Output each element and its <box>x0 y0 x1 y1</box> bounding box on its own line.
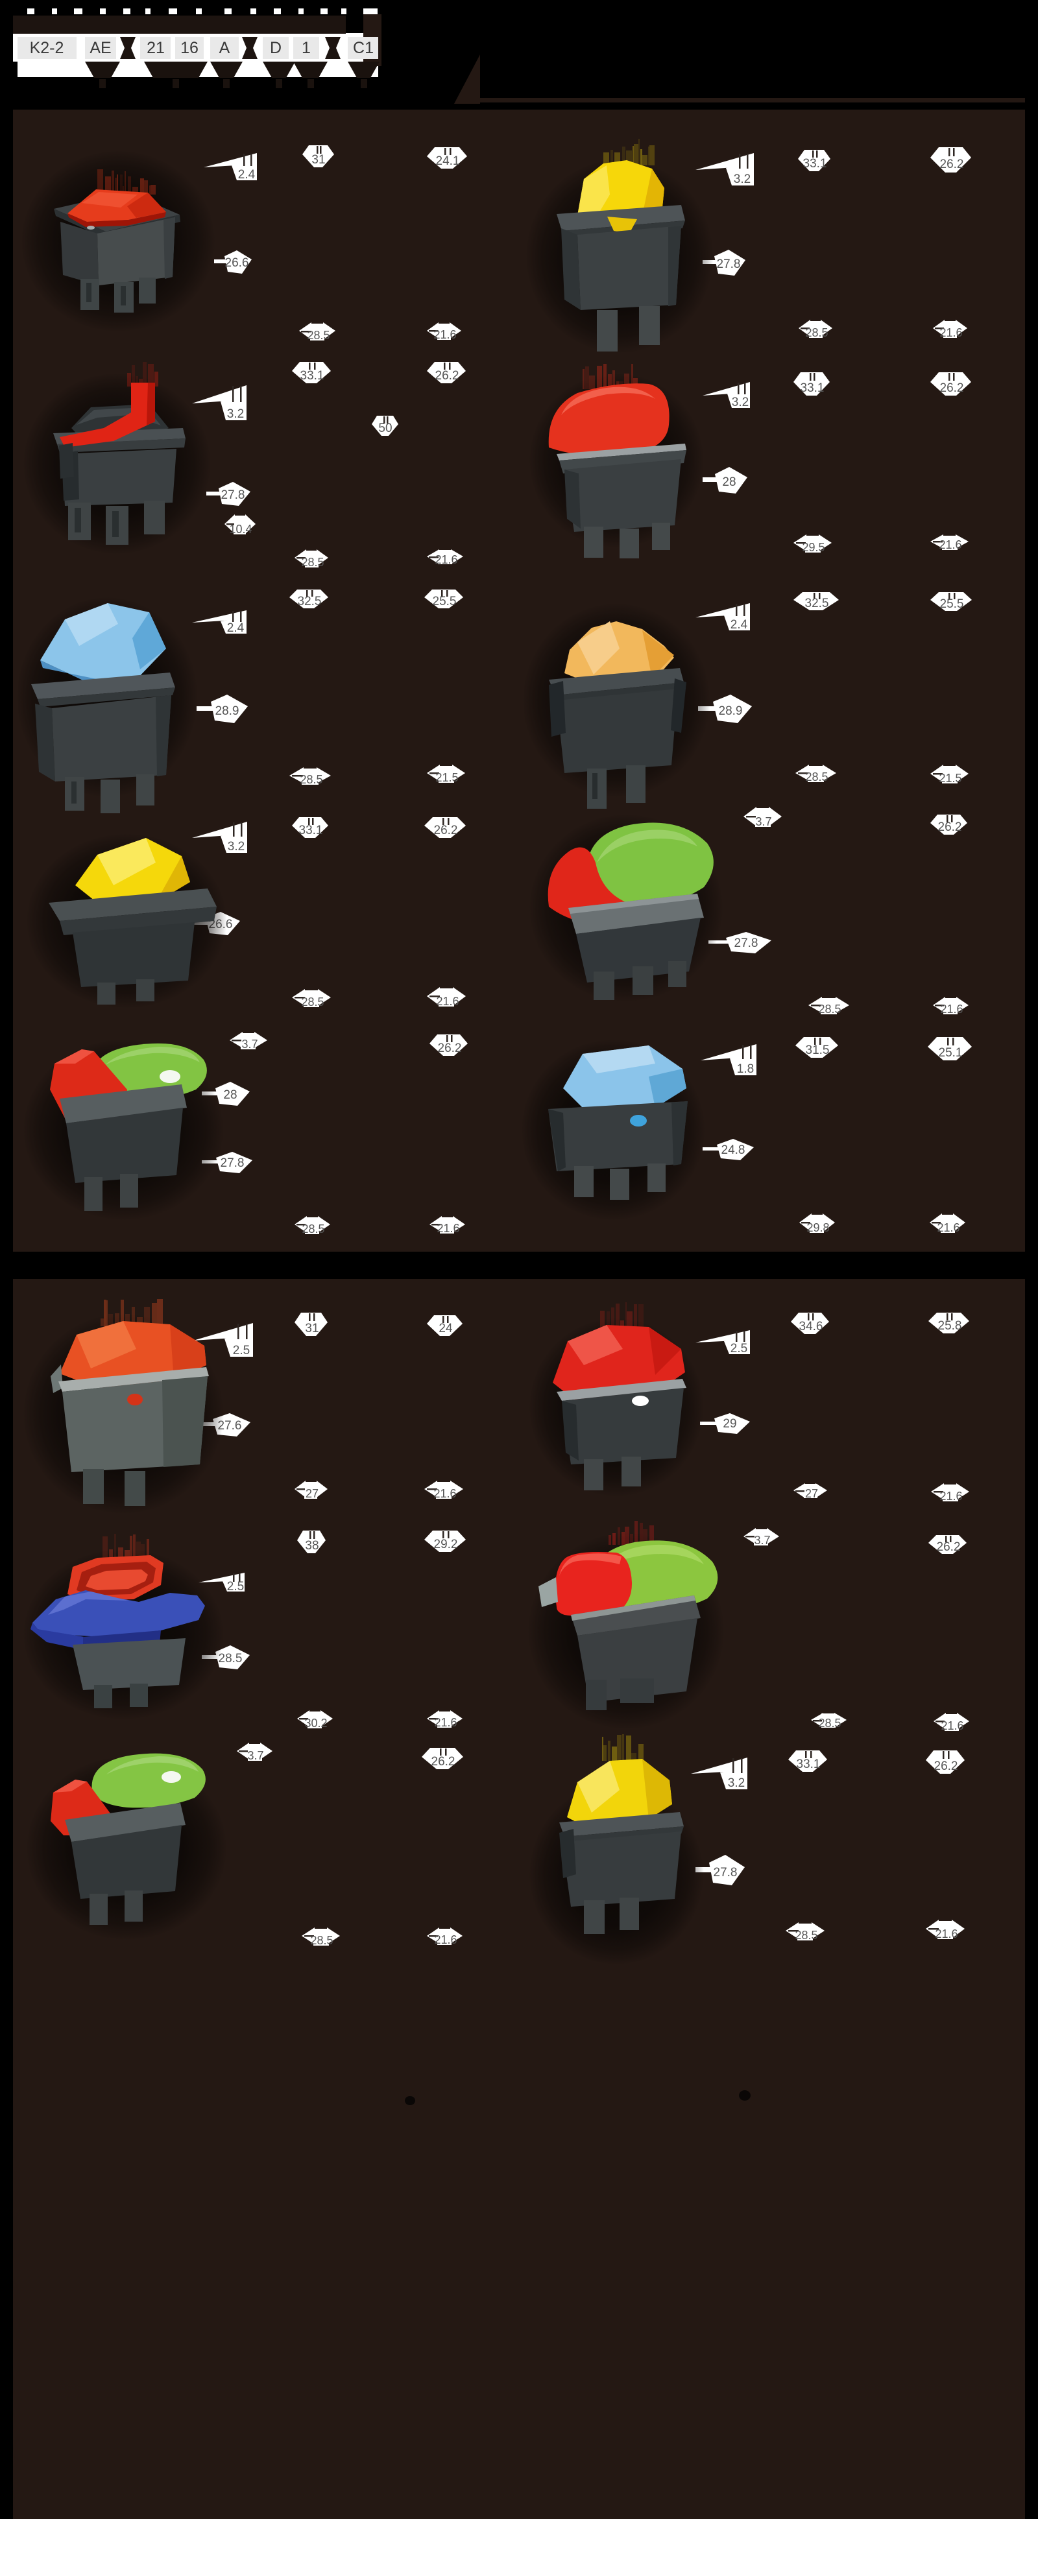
svg-text:21.6: 21.6 <box>935 1927 958 1940</box>
svg-text:21.6: 21.6 <box>436 995 459 1008</box>
svg-text:28.5: 28.5 <box>805 326 828 339</box>
svg-text:10.4: 10.4 <box>229 523 252 536</box>
svg-text:27: 27 <box>306 1487 319 1500</box>
svg-text:31.5: 31.5 <box>806 1044 830 1057</box>
svg-text:2.5: 2.5 <box>233 1344 250 1357</box>
svg-text:3.2: 3.2 <box>228 840 245 853</box>
svg-text:33.1: 33.1 <box>797 1758 821 1771</box>
svg-text:28: 28 <box>722 475 736 489</box>
svg-text:21.5: 21.5 <box>939 772 961 785</box>
svg-text:34.6: 34.6 <box>799 1320 823 1333</box>
svg-text:3.7: 3.7 <box>241 1038 258 1051</box>
svg-text:2.4: 2.4 <box>730 618 748 632</box>
svg-text:28.5: 28.5 <box>307 329 330 342</box>
svg-text:3.7: 3.7 <box>754 1534 770 1547</box>
svg-text:27.8: 27.8 <box>734 936 758 950</box>
svg-text:32.5: 32.5 <box>298 595 322 608</box>
svg-text:26.2: 26.2 <box>431 1755 455 1769</box>
svg-text:3.7: 3.7 <box>755 815 771 828</box>
svg-text:2.4: 2.4 <box>227 621 245 635</box>
svg-text:21.6: 21.6 <box>435 553 457 566</box>
svg-text:26.2: 26.2 <box>938 820 962 834</box>
svg-text:28.5: 28.5 <box>300 773 322 786</box>
svg-text:27: 27 <box>805 1487 818 1500</box>
svg-text:32.5: 32.5 <box>805 597 829 610</box>
svg-text:28.9: 28.9 <box>719 704 743 718</box>
svg-text:30.2: 30.2 <box>304 1717 327 1730</box>
svg-text:33.1: 33.1 <box>801 381 825 395</box>
svg-text:28.5: 28.5 <box>805 770 828 783</box>
svg-text:3.2: 3.2 <box>728 1776 745 1790</box>
svg-text:1.8: 1.8 <box>737 1062 754 1076</box>
svg-text:25.5: 25.5 <box>433 595 457 608</box>
svg-text:24.8: 24.8 <box>721 1143 745 1157</box>
svg-text:K2-2: K2-2 <box>30 39 64 57</box>
svg-text:2.5: 2.5 <box>730 1342 747 1355</box>
svg-text:A: A <box>219 39 230 57</box>
svg-text:28.5: 28.5 <box>301 556 324 569</box>
svg-text:21.6: 21.6 <box>941 1719 963 1732</box>
svg-text:1: 1 <box>302 39 311 57</box>
svg-text:3.7: 3.7 <box>247 1749 263 1762</box>
svg-text:28: 28 <box>223 1088 237 1102</box>
svg-text:28.5: 28.5 <box>310 1934 333 1947</box>
svg-text:26.2: 26.2 <box>438 1042 462 1055</box>
svg-text:33.1: 33.1 <box>300 369 324 383</box>
svg-text:21.6: 21.6 <box>434 1933 457 1946</box>
svg-text:26.2: 26.2 <box>934 1759 958 1773</box>
svg-text:29.2: 29.2 <box>434 1538 458 1551</box>
svg-text:26.2: 26.2 <box>940 158 964 171</box>
svg-text:3.2: 3.2 <box>732 396 749 409</box>
svg-text:21: 21 <box>147 39 165 57</box>
svg-text:26.6: 26.6 <box>225 256 249 270</box>
svg-text:38: 38 <box>305 1539 319 1553</box>
svg-text:25.8: 25.8 <box>938 1319 962 1333</box>
svg-text:2.5: 2.5 <box>227 1580 244 1593</box>
svg-text:29: 29 <box>723 1417 736 1431</box>
svg-text:AE: AE <box>90 39 111 57</box>
svg-text:26.2: 26.2 <box>434 824 458 837</box>
svg-text:28.5: 28.5 <box>818 1003 841 1016</box>
svg-text:D: D <box>270 39 282 57</box>
svg-text:29.5: 29.5 <box>802 541 825 554</box>
svg-text:3.2: 3.2 <box>227 407 244 421</box>
svg-text:28.5: 28.5 <box>795 1929 817 1942</box>
svg-text:21.6: 21.6 <box>939 538 961 551</box>
svg-text:27.8: 27.8 <box>717 257 741 271</box>
svg-text:26.2: 26.2 <box>435 369 459 383</box>
svg-text:27.8: 27.8 <box>221 1156 245 1170</box>
svg-text:21.6: 21.6 <box>437 1222 459 1235</box>
svg-text:27.8: 27.8 <box>714 1866 738 1879</box>
svg-text:3.2: 3.2 <box>734 173 751 186</box>
svg-text:26.2: 26.2 <box>937 1540 961 1554</box>
svg-text:26.2: 26.2 <box>940 381 964 395</box>
svg-text:31: 31 <box>305 1322 319 1335</box>
svg-text:21.6: 21.6 <box>433 1487 456 1500</box>
svg-text:25.1: 25.1 <box>939 1046 963 1060</box>
svg-text:21.6: 21.6 <box>433 328 456 341</box>
svg-text:33.1: 33.1 <box>803 157 827 171</box>
svg-text:2.4: 2.4 <box>238 168 256 182</box>
svg-text:24: 24 <box>439 1322 453 1335</box>
svg-text:31: 31 <box>311 153 325 167</box>
svg-text:21.6: 21.6 <box>937 1221 960 1234</box>
svg-text:28.5: 28.5 <box>301 996 324 1008</box>
svg-text:21.6: 21.6 <box>939 326 962 339</box>
svg-text:24.1: 24.1 <box>436 154 460 168</box>
svg-text:25.5: 25.5 <box>940 597 964 611</box>
svg-text:28.5: 28.5 <box>219 1652 243 1665</box>
svg-text:28.5: 28.5 <box>818 1717 841 1730</box>
svg-text:21.6: 21.6 <box>940 1003 963 1016</box>
svg-text:21.6: 21.6 <box>939 1490 962 1503</box>
svg-text:C1: C1 <box>353 39 374 57</box>
svg-text:27.8: 27.8 <box>221 488 245 502</box>
svg-text:33.1: 33.1 <box>299 824 323 837</box>
svg-text:29.8: 29.8 <box>806 1221 829 1234</box>
svg-text:21.5: 21.5 <box>435 771 458 784</box>
svg-text:28.9: 28.9 <box>215 704 239 718</box>
svg-text:28.5: 28.5 <box>302 1222 324 1235</box>
svg-text:50: 50 <box>378 422 392 435</box>
svg-text:16: 16 <box>180 39 199 57</box>
svg-text:21.6: 21.6 <box>434 1716 457 1729</box>
